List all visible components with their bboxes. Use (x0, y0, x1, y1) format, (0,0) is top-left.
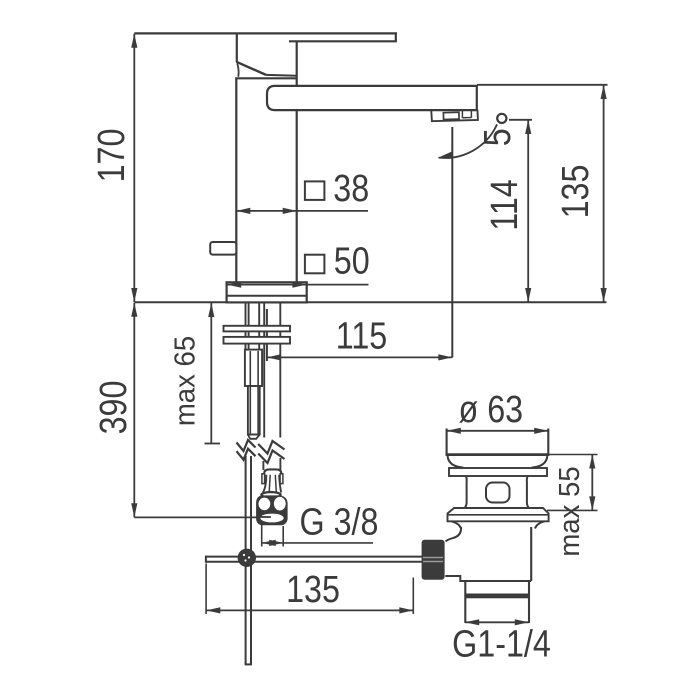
svg-text:135: 135 (555, 165, 597, 219)
svg-text:50: 50 (334, 240, 370, 282)
svg-text:38: 38 (333, 167, 369, 209)
svg-text:115: 115 (336, 315, 387, 357)
svg-text:114: 114 (484, 179, 526, 230)
svg-text:max 65: max 65 (168, 336, 201, 426)
svg-text:G 3/8: G 3/8 (300, 501, 379, 543)
svg-text:390: 390 (92, 381, 134, 435)
svg-text:135: 135 (286, 569, 340, 611)
svg-text:max 55: max 55 (552, 466, 585, 556)
svg-text:ø 63: ø 63 (458, 389, 523, 431)
svg-text:170: 170 (91, 129, 133, 183)
svg-text:5: 5 (476, 128, 518, 146)
svg-text:G1-1/4: G1-1/4 (452, 623, 551, 665)
